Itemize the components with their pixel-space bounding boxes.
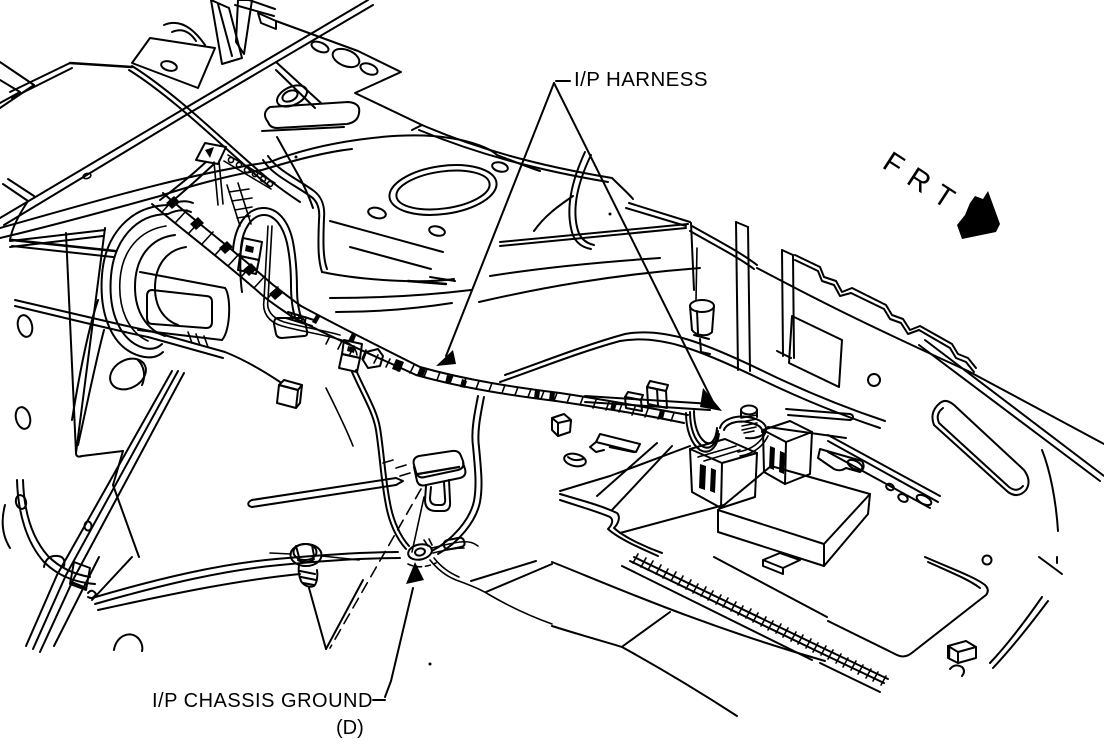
svg-text:I/P CHASSIS GROUND: I/P CHASSIS GROUND bbox=[152, 690, 373, 712]
svg-text:(D): (D) bbox=[336, 717, 364, 739]
svg-text:I/P HARNESS: I/P HARNESS bbox=[574, 68, 708, 91]
